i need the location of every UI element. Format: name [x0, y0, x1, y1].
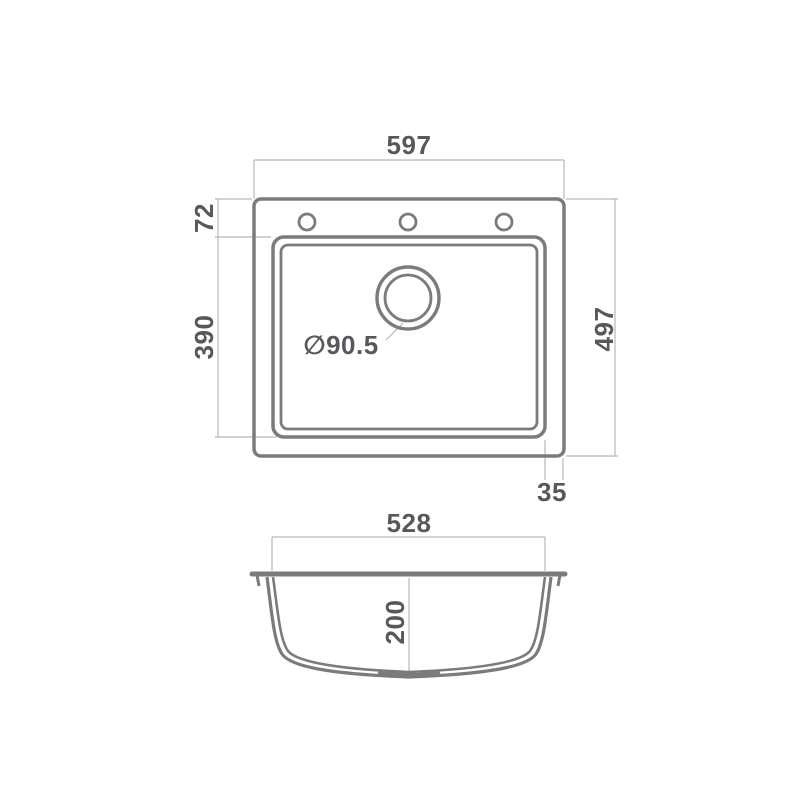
drawing-canvas: 597 72 390 497 35 ∅90.5 528 200 [0, 0, 800, 800]
dim-35-line [545, 440, 563, 480]
drain-inner-circle [385, 275, 431, 321]
section-rim-right-lip [558, 575, 560, 586]
section-rim-left-lip [257, 575, 259, 586]
dim-497-label: 497 [589, 307, 619, 352]
dim-72-label: 72 [189, 203, 219, 233]
dim-597-label: 597 [387, 130, 432, 160]
dim-200-label: 200 [380, 600, 410, 645]
dim-390-label: 390 [189, 315, 219, 360]
faucet-hole-center [400, 214, 416, 230]
faucet-hole-left [299, 214, 315, 230]
sink-technical-drawing: 597 72 390 497 35 ∅90.5 528 200 [0, 0, 800, 800]
drain-diameter-label: ∅90.5 [303, 330, 378, 360]
dim-528-line [272, 537, 545, 571]
faucet-hole-right [496, 214, 512, 230]
dim-72-390-line [215, 199, 277, 437]
dim-35-label: 35 [537, 477, 567, 507]
dim-597-line [254, 160, 564, 199]
dim-528-label: 528 [387, 508, 432, 538]
section-drain-recess [378, 673, 440, 676]
